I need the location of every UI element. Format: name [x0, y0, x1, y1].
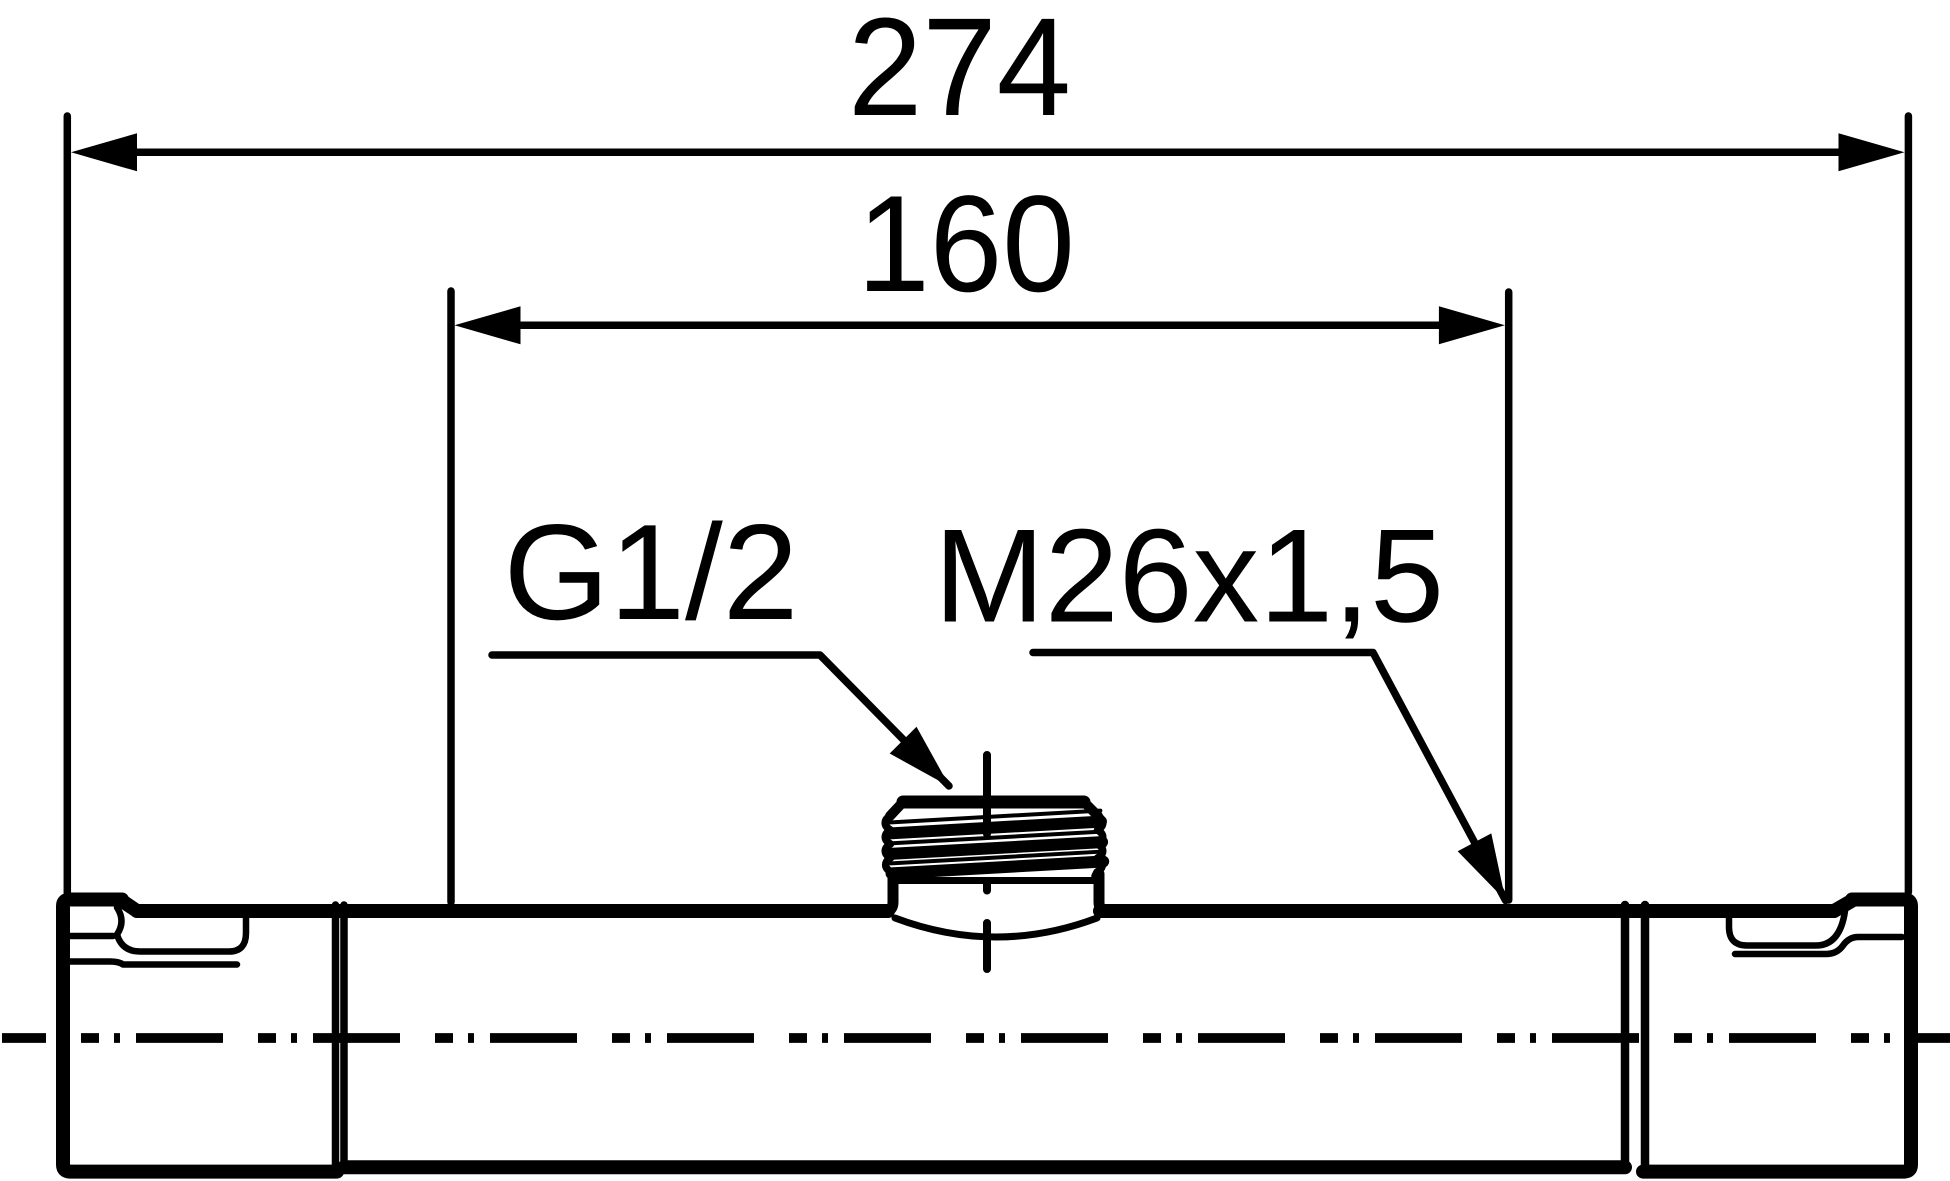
- svg-text:160: 160: [857, 168, 1075, 321]
- svg-text:274: 274: [848, 0, 1071, 145]
- svg-text:G1/2: G1/2: [504, 496, 799, 648]
- svg-text:M26x1,5: M26x1,5: [934, 503, 1444, 651]
